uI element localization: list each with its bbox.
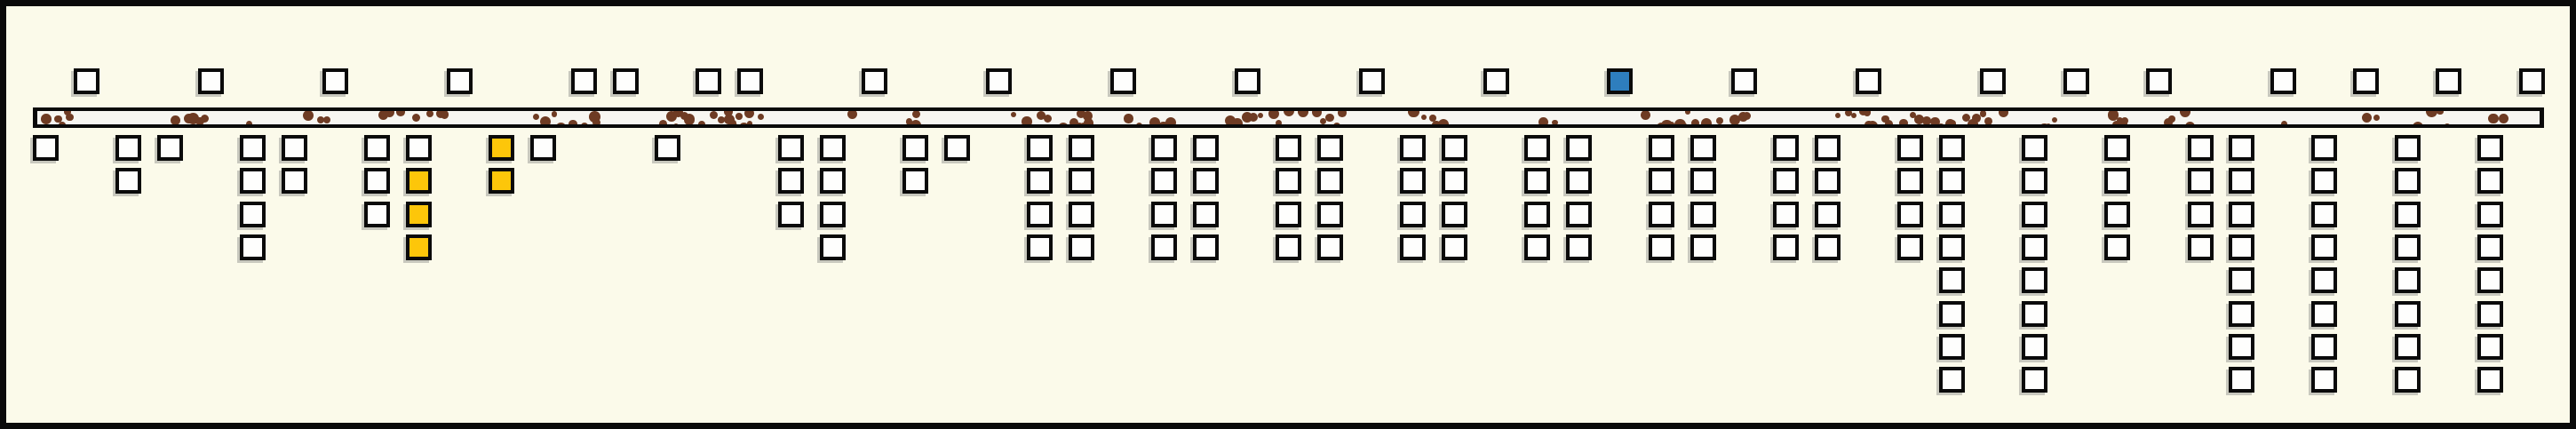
bottom-marker	[1815, 168, 1841, 194]
speckle-dot	[1864, 111, 1871, 116]
top-marker	[2353, 68, 2379, 94]
speckle-dot	[684, 114, 695, 124]
bottom-marker	[115, 135, 141, 161]
bottom-marker	[1193, 135, 1219, 161]
bottom-marker	[2311, 301, 2337, 327]
top-marker-blue	[1607, 68, 1633, 94]
speckle-dot	[1231, 120, 1238, 124]
speckle-dot	[1885, 120, 1893, 124]
speckle-dot	[710, 111, 718, 119]
top-marker	[74, 68, 99, 94]
bottom-marker	[2022, 267, 2047, 293]
bottom-marker	[1317, 168, 1343, 194]
speckle-dot	[1084, 118, 1094, 124]
bottom-marker	[1151, 135, 1177, 161]
speckle-dot	[1408, 111, 1419, 117]
bottom-marker	[282, 135, 307, 161]
speckle-dot	[568, 120, 577, 124]
bottom-marker	[1649, 135, 1674, 161]
bottom-marker	[1939, 267, 1965, 293]
speckle-dot	[1276, 120, 1283, 124]
bottom-marker	[1939, 301, 1965, 327]
bottom-marker	[157, 135, 183, 161]
speckle-dot	[1716, 117, 1723, 124]
bottom-marker-yellow	[406, 234, 432, 260]
bottom-marker-yellow	[406, 202, 432, 227]
bottom-marker	[2311, 267, 2337, 293]
bottom-marker	[2477, 334, 2503, 360]
speckle-dot	[2437, 111, 2444, 115]
speckle-dot	[1641, 111, 1650, 120]
bottom-marker	[2229, 168, 2254, 194]
speckle-dot	[744, 111, 754, 118]
speckle-dot	[2426, 111, 2437, 117]
speckle-dot	[1685, 111, 1691, 115]
bottom-marker	[1690, 168, 1716, 194]
bottom-marker	[1897, 135, 1923, 161]
speckle-dot	[673, 123, 679, 124]
speckle-dot	[758, 114, 764, 120]
speckle-dot	[441, 111, 449, 119]
bottom-marker	[1069, 234, 1094, 260]
bottom-marker	[2104, 202, 2130, 227]
bottom-marker	[944, 135, 970, 161]
speckle-dot	[847, 111, 857, 119]
bottom-marker	[1069, 135, 1094, 161]
bottom-marker	[1649, 168, 1674, 194]
chromosome-band	[33, 107, 2544, 128]
bottom-marker	[1649, 234, 1674, 260]
speckle-dot	[1867, 121, 1878, 124]
top-marker	[2146, 68, 2172, 94]
bottom-marker	[2395, 267, 2421, 293]
bottom-marker	[1276, 234, 1301, 260]
speckle-dot	[2121, 117, 2128, 124]
bottom-marker	[1939, 367, 1965, 393]
bottom-marker	[2395, 202, 2421, 227]
bottom-marker	[2022, 301, 2047, 327]
speckle-dot	[1325, 114, 1334, 123]
speckle-dot	[2444, 123, 2451, 124]
bottom-marker	[655, 135, 680, 161]
bottom-marker	[2395, 234, 2421, 260]
bottom-marker	[240, 135, 266, 161]
bottom-marker	[2395, 334, 2421, 360]
bottom-marker	[1027, 168, 1053, 194]
bottom-marker	[1897, 168, 1923, 194]
bottom-marker-yellow	[489, 135, 514, 161]
bottom-marker	[2022, 202, 2047, 227]
speckle-dot	[41, 114, 52, 124]
bottom-marker	[1317, 234, 1343, 260]
speckle-dot	[385, 111, 394, 117]
top-marker	[447, 68, 473, 94]
bottom-marker	[1276, 202, 1301, 227]
bottom-marker	[2022, 334, 2047, 360]
bottom-marker	[1524, 202, 1550, 227]
bottom-marker	[1400, 168, 1426, 194]
bottom-marker	[1276, 168, 1301, 194]
bottom-marker	[2395, 168, 2421, 194]
bottom-marker	[1566, 168, 1592, 194]
bottom-marker	[902, 135, 928, 161]
top-marker	[737, 68, 763, 94]
bottom-marker	[1524, 135, 1550, 161]
bottom-marker	[406, 135, 432, 161]
top-marker	[1110, 68, 1136, 94]
bottom-marker	[2477, 202, 2503, 227]
bottom-marker	[778, 202, 804, 227]
bottom-marker	[2229, 367, 2254, 393]
bottom-marker	[1773, 168, 1799, 194]
speckle-dot	[556, 123, 565, 124]
speckle-dot	[1936, 123, 1945, 124]
bottom-marker	[2188, 234, 2214, 260]
bottom-marker	[2395, 135, 2421, 161]
bottom-marker	[1939, 334, 1965, 360]
bottom-marker	[530, 135, 556, 161]
bottom-marker	[1773, 202, 1799, 227]
speckle-dot	[1333, 123, 1340, 124]
bottom-marker	[1027, 202, 1053, 227]
bottom-marker	[1193, 202, 1219, 227]
speckle-dot	[910, 120, 922, 124]
top-marker	[2270, 68, 2296, 94]
speckle-dot	[1835, 113, 1841, 118]
bottom-marker	[1690, 135, 1716, 161]
speckle-dot	[912, 111, 920, 118]
bottom-marker-yellow	[489, 168, 514, 194]
speckle-dot	[2046, 123, 2051, 124]
speckle-dot	[2168, 115, 2175, 123]
bottom-marker	[820, 135, 846, 161]
speckle-dot	[2499, 114, 2509, 124]
bottom-marker	[1939, 202, 1965, 227]
bottom-marker	[2477, 367, 2503, 393]
bottom-marker	[1815, 202, 1841, 227]
top-marker	[696, 68, 721, 94]
bottom-marker	[2477, 301, 2503, 327]
speckle-dot	[1284, 111, 1294, 116]
bottom-marker	[1773, 135, 1799, 161]
bottom-marker	[778, 168, 804, 194]
speckle-dot	[747, 121, 753, 124]
speckle-dot	[2488, 114, 2499, 124]
speckle-dot	[1899, 119, 1908, 125]
speckle-dot	[1011, 112, 1016, 117]
bottom-marker	[2229, 267, 2254, 293]
bottom-marker	[2022, 367, 2047, 393]
bottom-marker	[2022, 234, 2047, 260]
bottom-marker	[2311, 135, 2337, 161]
bottom-marker	[820, 234, 846, 260]
speckle-dot	[396, 111, 405, 116]
bottom-marker	[2311, 168, 2337, 194]
top-marker	[1483, 68, 1509, 94]
bottom-marker	[1690, 202, 1716, 227]
bottom-marker	[115, 168, 141, 194]
bottom-marker	[1524, 168, 1550, 194]
speckle-dot	[552, 111, 558, 117]
top-marker	[1731, 68, 1757, 94]
speckle-dot	[1851, 113, 1856, 118]
speckle-dot	[1298, 111, 1309, 117]
bottom-marker	[2311, 202, 2337, 227]
speckle-dot	[1980, 111, 1987, 117]
bottom-marker	[1815, 234, 1841, 260]
bottom-marker	[1939, 234, 1965, 260]
speckle-dot	[1438, 119, 1450, 124]
speckle-dot	[66, 114, 74, 122]
bottom-marker	[2229, 234, 2254, 260]
speckle-dot	[698, 121, 705, 124]
speckle-dot	[1136, 123, 1143, 125]
speckle-dot	[1999, 111, 2008, 117]
bottom-marker	[240, 168, 266, 194]
speckle-dot	[1949, 120, 1957, 124]
speckle-dot	[1743, 112, 1752, 121]
top-marker	[198, 68, 224, 94]
speckle-dot	[1538, 117, 1548, 124]
speckle-dot	[1165, 117, 1176, 125]
bottom-marker	[282, 168, 307, 194]
bottom-marker	[902, 168, 928, 194]
speckle-dot	[1312, 111, 1323, 117]
bottom-marker	[2188, 202, 2214, 227]
bottom-marker	[1027, 135, 1053, 161]
speckle-dot	[2413, 122, 2423, 124]
top-marker	[2063, 68, 2089, 94]
bottom-marker	[1151, 168, 1177, 194]
bottom-marker	[2022, 135, 2047, 161]
bottom-marker	[1566, 234, 1592, 260]
speckle-dot	[59, 122, 66, 124]
speckle-dot	[1701, 118, 1713, 124]
speckle-dot	[1044, 115, 1052, 123]
speckle-dot	[426, 111, 433, 117]
bottom-marker	[1897, 202, 1923, 227]
top-marker	[862, 68, 887, 94]
speckle-dot	[2362, 113, 2372, 123]
speckle-dot	[1258, 113, 1263, 118]
bottom-marker	[1400, 202, 1426, 227]
speckle-dot	[730, 120, 736, 124]
bottom-marker	[1151, 234, 1177, 260]
bottom-marker	[2229, 301, 2254, 327]
bottom-marker	[778, 135, 804, 161]
bottom-marker	[1317, 202, 1343, 227]
band-speckle-texture	[37, 111, 2540, 124]
bottom-marker	[364, 168, 390, 194]
bottom-marker	[2229, 135, 2254, 161]
speckle-dot	[201, 115, 209, 123]
speckle-dot	[1421, 115, 1427, 120]
bottom-marker	[1815, 135, 1841, 161]
top-marker	[986, 68, 1012, 94]
bottom-marker	[1939, 168, 1965, 194]
bottom-marker	[1442, 234, 1467, 260]
speckle-dot	[412, 114, 420, 122]
speckle-dot	[1681, 123, 1689, 125]
marker-map-figure	[0, 0, 2576, 429]
speckle-dot	[1984, 117, 1992, 124]
bottom-marker	[1690, 234, 1716, 260]
speckle-dot	[540, 116, 551, 124]
top-marker	[2436, 68, 2461, 94]
bottom-marker	[2311, 234, 2337, 260]
bottom-marker	[364, 135, 390, 161]
bottom-marker	[2188, 168, 2214, 194]
bottom-marker	[1027, 234, 1053, 260]
speckle-dot	[592, 119, 600, 125]
bottom-marker-yellow	[406, 168, 432, 194]
bottom-marker	[820, 202, 846, 227]
speckle-dot	[2185, 122, 2196, 124]
bottom-marker	[1400, 135, 1426, 161]
bottom-marker	[2477, 135, 2503, 161]
bottom-marker	[1193, 234, 1219, 260]
speckle-dot	[1249, 113, 1259, 123]
speckle-dot	[1338, 111, 1347, 117]
bottom-marker	[1193, 168, 1219, 194]
bottom-marker	[2477, 234, 2503, 260]
speckle-dot	[246, 121, 252, 124]
top-marker	[1856, 68, 1881, 94]
speckle-dot	[1022, 116, 1032, 124]
top-marker	[1235, 68, 1260, 94]
bottom-marker	[1400, 234, 1426, 260]
bottom-marker	[2229, 202, 2254, 227]
bottom-marker	[1939, 135, 1965, 161]
bottom-marker	[1442, 135, 1467, 161]
speckle-dot	[1058, 123, 1069, 125]
speckle-dot	[581, 123, 588, 124]
speckle-dot	[1124, 114, 1133, 123]
bottom-marker	[1151, 202, 1177, 227]
top-marker	[1359, 68, 1385, 94]
speckle-dot	[735, 113, 743, 120]
speckle-dot	[1552, 120, 1558, 124]
bottom-marker	[1566, 135, 1592, 161]
bottom-marker	[240, 202, 266, 227]
bottom-marker	[364, 202, 390, 227]
bottom-marker	[1442, 168, 1467, 194]
bottom-marker	[1649, 202, 1674, 227]
bottom-marker	[1317, 135, 1343, 161]
bottom-marker	[2104, 135, 2130, 161]
bottom-marker	[2311, 367, 2337, 393]
top-marker	[2519, 68, 2545, 94]
bottom-marker	[2022, 168, 2047, 194]
bottom-marker	[2311, 334, 2337, 360]
bottom-marker	[240, 234, 266, 260]
bottom-marker	[1069, 202, 1094, 227]
bottom-marker	[2477, 168, 2503, 194]
top-marker	[571, 68, 597, 94]
speckle-dot	[659, 120, 667, 124]
top-marker	[1980, 68, 2006, 94]
bottom-marker	[2188, 135, 2214, 161]
speckle-dot	[303, 111, 314, 121]
bottom-marker	[2229, 334, 2254, 360]
speckle-dot	[2180, 111, 2191, 117]
bottom-marker	[2395, 367, 2421, 393]
bottom-marker	[1276, 135, 1301, 161]
speckle-dot	[2281, 121, 2287, 124]
bottom-marker	[1442, 202, 1467, 227]
speckle-dot	[171, 115, 180, 124]
speckle-dot	[2373, 115, 2380, 121]
top-marker	[322, 68, 348, 94]
speckle-dot	[1268, 111, 1279, 119]
bottom-marker	[820, 168, 846, 194]
top-marker	[613, 68, 639, 94]
bottom-marker	[2104, 168, 2130, 194]
bottom-marker	[2395, 301, 2421, 327]
bottom-marker	[1069, 168, 1094, 194]
bottom-marker	[1566, 202, 1592, 227]
speckle-dot	[2052, 117, 2057, 123]
bottom-marker	[2104, 234, 2130, 260]
speckle-dot	[1691, 119, 1699, 125]
bottom-marker	[1897, 234, 1923, 260]
bottom-marker	[33, 135, 59, 161]
speckle-dot	[323, 116, 330, 123]
bottom-marker	[1773, 234, 1799, 260]
bottom-marker	[2477, 267, 2503, 293]
bottom-marker	[1524, 234, 1550, 260]
speckle-dot	[533, 114, 539, 120]
